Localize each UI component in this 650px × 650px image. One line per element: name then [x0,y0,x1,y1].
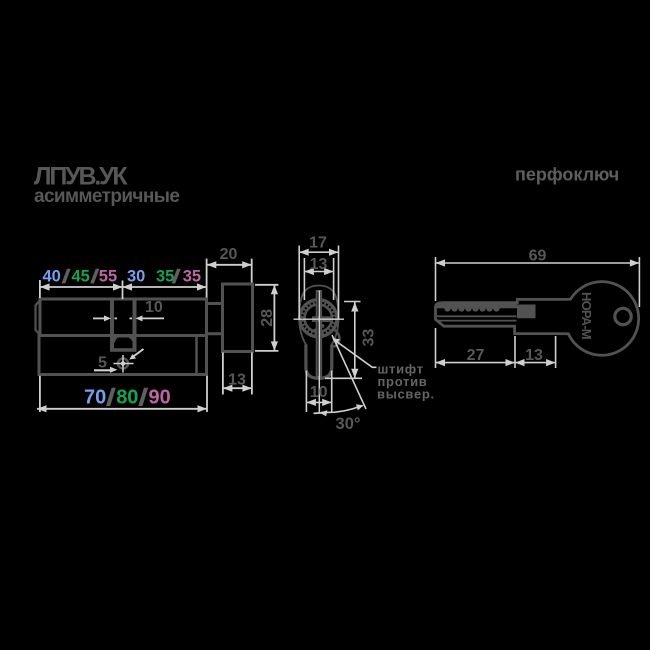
svg-text:НОРА-М: НОРА-М [579,292,594,339]
svg-text:30°: 30° [336,415,361,433]
svg-text:5: 5 [98,355,107,372]
svg-text:90: 90 [149,387,171,409]
svg-text:45: 45 [72,268,90,286]
svg-text:асимметричные: асимметричные [34,186,179,207]
svg-text:40: 40 [43,268,61,286]
svg-text:55: 55 [99,268,117,286]
svg-text:перфоключ: перфоключ [515,164,619,184]
svg-text:27: 27 [467,347,485,364]
svg-text:10: 10 [310,384,328,401]
svg-text:35: 35 [156,268,174,286]
svg-text:70: 70 [84,387,106,409]
svg-text:высвер.: высвер. [377,387,435,402]
svg-text:30: 30 [127,268,145,286]
svg-text:28: 28 [259,309,276,327]
svg-text:33: 33 [361,329,378,347]
svg-text:10: 10 [145,299,163,316]
svg-text:69: 69 [529,248,547,265]
svg-text:17: 17 [309,235,327,252]
svg-text:13: 13 [525,347,543,364]
svg-text:80: 80 [116,387,138,409]
svg-text:35: 35 [183,268,201,286]
svg-text:13: 13 [310,256,328,273]
svg-text:20: 20 [220,246,238,263]
svg-text:13: 13 [228,371,246,388]
